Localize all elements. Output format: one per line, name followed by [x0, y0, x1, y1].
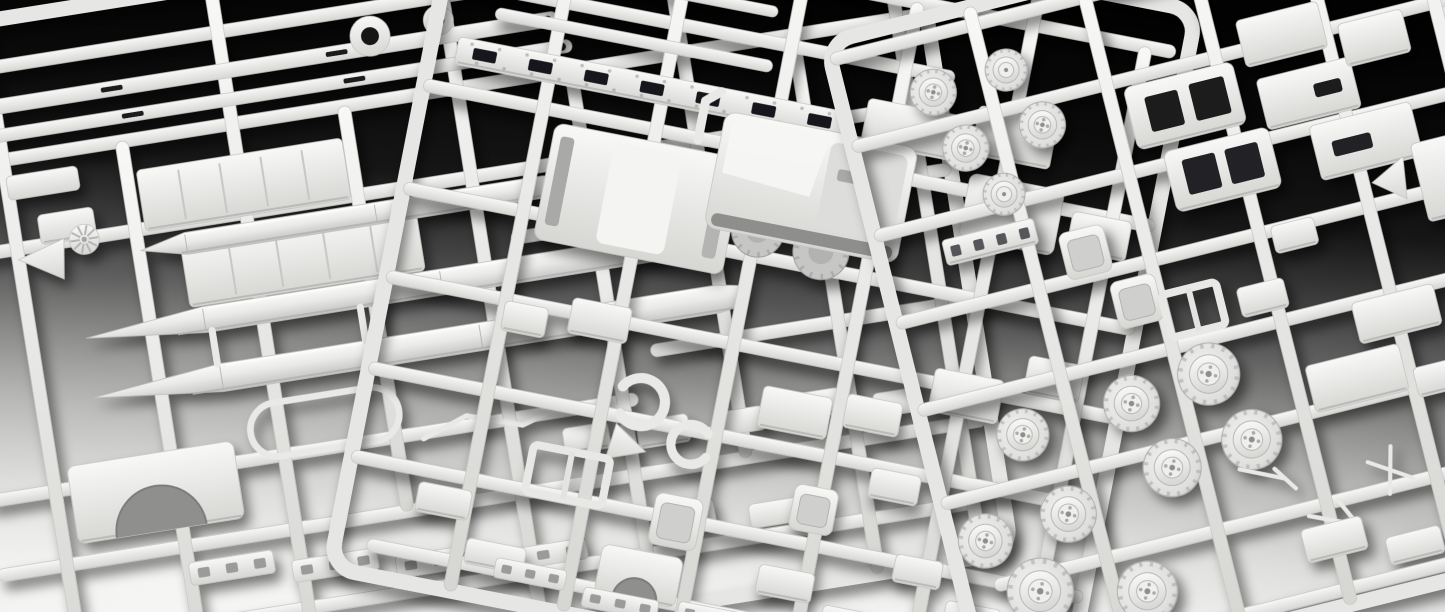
- tread-tick: [1246, 464, 1249, 469]
- tread-tick: [1044, 428, 1048, 429]
- tread-tick: [1211, 343, 1214, 348]
- tread-tick: [929, 111, 931, 115]
- tread-tick: [943, 153, 947, 154]
- tread-tick: [959, 546, 963, 547]
- tread-tick: [1201, 344, 1202, 349]
- tread-tick: [1041, 520, 1045, 521]
- tread-tick: [999, 174, 1000, 177]
- tread-tick: [1062, 487, 1063, 491]
- tread-tick: [1126, 427, 1129, 431]
- tread-tick: [997, 430, 1001, 432]
- tread-tick: [1018, 456, 1020, 460]
- tread-tick: [1008, 585, 1013, 588]
- tread-tick: [1062, 127, 1066, 129]
- tread-tick: [843, 256, 848, 257]
- tread-tick: [1001, 50, 1002, 53]
- tread-tick: [1008, 211, 1009, 214]
- tread-tick: [1150, 562, 1153, 567]
- tread-tick: [979, 515, 980, 519]
- tread-tick: [1063, 537, 1066, 541]
- tread-tick: [1175, 439, 1178, 444]
- tread-tick: [1041, 509, 1045, 512]
- tread-tick: [952, 94, 956, 96]
- tread-tick: [970, 167, 971, 171]
- tread-tick: [1104, 409, 1108, 410]
- tread-tick: [998, 440, 1002, 441]
- tread-tick: [928, 70, 929, 74]
- tread-tick: [1022, 196, 1025, 198]
- tread-tick: [1021, 189, 1024, 190]
- tread-tick: [985, 142, 989, 143]
- tread-tick: [985, 150, 989, 152]
- tread-tick: [1277, 442, 1282, 445]
- tread-tick: [1008, 49, 1010, 52]
- photo-canvas: [0, 0, 1445, 612]
- tread-tick: [1234, 367, 1239, 368]
- tread-tick: [1178, 368, 1183, 371]
- tread-tick: [1091, 507, 1095, 508]
- tread-tick: [1032, 559, 1033, 564]
- tread-tick: [1223, 446, 1228, 447]
- tread-tick: [1276, 432, 1281, 433]
- tread-tick: [960, 126, 961, 130]
- tread-tick: [1125, 376, 1126, 380]
- tread-tick: [1071, 486, 1074, 490]
- tread-tick: [1074, 537, 1075, 541]
- tread-tick: [991, 563, 992, 567]
- part-hole: [197, 567, 210, 578]
- tread-tick: [1006, 173, 1008, 176]
- tread-tick: [1178, 491, 1179, 496]
- tread-tick: [1196, 461, 1201, 462]
- tread-tick: [1010, 87, 1011, 90]
- tread-tick: [1007, 534, 1011, 535]
- tread-tick: [1025, 409, 1027, 413]
- tread-tick: [911, 88, 915, 90]
- tread-tick: [1144, 462, 1149, 465]
- tread-tick: [1140, 562, 1141, 567]
- tread-tick: [1037, 103, 1038, 107]
- tread-tick: [1020, 121, 1024, 123]
- tread-tick: [1137, 426, 1138, 430]
- seat-inset: [1118, 283, 1157, 322]
- tread-tick: [1068, 594, 1073, 597]
- seat-inset: [796, 493, 831, 528]
- seat-inset: [655, 502, 695, 544]
- tread-tick: [1118, 597, 1123, 598]
- tread-tick: [1044, 437, 1048, 439]
- tread-tick: [1245, 410, 1246, 415]
- tread-tick: [1144, 473, 1149, 474]
- tread-tick: [935, 70, 937, 74]
- tread-tick: [1020, 129, 1024, 130]
- tread-tick: [1222, 434, 1227, 437]
- seat-inset: [1066, 234, 1105, 273]
- tread-tick: [1104, 398, 1108, 401]
- part-hole: [225, 562, 238, 573]
- tread-tick: [911, 97, 915, 98]
- tread-tick: [986, 74, 989, 75]
- part-hole: [404, 560, 418, 571]
- tread-tick: [1008, 543, 1012, 546]
- tread-tick: [1234, 377, 1239, 380]
- tread-tick: [1028, 456, 1029, 460]
- tread-tick: [1024, 72, 1027, 74]
- tread-tick: [1215, 399, 1216, 404]
- tread-tick: [1179, 380, 1184, 381]
- tread-tick: [794, 246, 799, 247]
- tread-tick: [1044, 102, 1046, 106]
- tread-tick: [1047, 144, 1048, 148]
- tread-tick: [1258, 464, 1259, 469]
- tread-tick: [1043, 559, 1046, 564]
- tread-tick: [1196, 470, 1201, 473]
- tread-tick: [938, 111, 939, 115]
- tread-tick: [1038, 144, 1040, 148]
- tread-tick: [1172, 594, 1177, 597]
- tread-tick: [1061, 119, 1065, 120]
- tread-tick: [959, 536, 963, 539]
- part-hole: [253, 558, 266, 569]
- tread-tick: [952, 87, 956, 88]
- sprue-photo: [0, 0, 1445, 612]
- tread-tick: [1067, 583, 1072, 584]
- tread-tick: [1023, 65, 1026, 66]
- part-hole: [300, 564, 313, 575]
- tread-tick: [983, 190, 986, 192]
- tread-tick: [1254, 410, 1257, 415]
- tread-tick: [988, 514, 991, 518]
- tread-tick: [1008, 598, 1013, 599]
- tread-tick: [1165, 439, 1166, 444]
- tread-tick: [984, 198, 987, 199]
- tread-tick: [1167, 492, 1170, 497]
- tread-tick: [1118, 586, 1123, 589]
- tread-tick: [1017, 410, 1018, 414]
- tread-tick: [1155, 406, 1159, 409]
- tread-tick: [968, 125, 970, 129]
- tread-tick: [985, 66, 988, 68]
- tread-tick: [1172, 584, 1177, 585]
- tread-tick: [1092, 517, 1096, 520]
- part-hole: [357, 555, 370, 566]
- tread-tick: [1203, 400, 1206, 405]
- tread-tick: [962, 167, 964, 171]
- tread-tick: [943, 144, 947, 146]
- tread-tick: [1002, 87, 1004, 90]
- tread-tick: [821, 274, 823, 280]
- tread-tick: [1134, 376, 1137, 380]
- tread-tick: [1000, 212, 1002, 215]
- tread-tick: [1154, 397, 1158, 398]
- tread-tick: [980, 563, 983, 567]
- tread-tick: [757, 252, 759, 257]
